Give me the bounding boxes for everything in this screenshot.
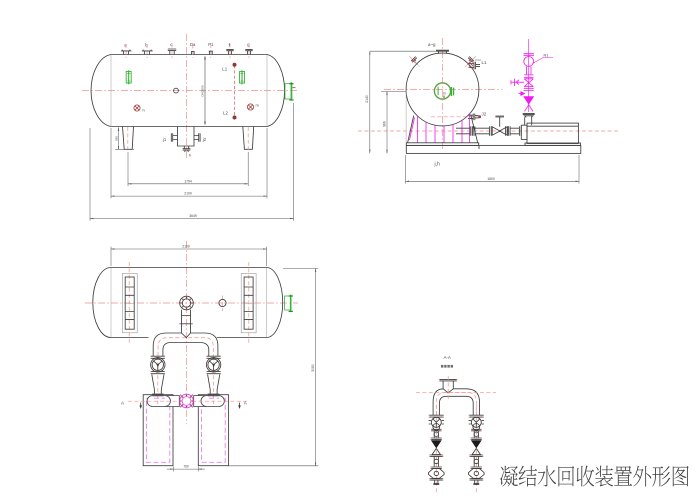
svg-text:A: A (121, 400, 125, 405)
svg-text:A-A: A-A (444, 355, 451, 360)
svg-text:2140: 2140 (365, 95, 369, 103)
svg-text:j,h: j,h (434, 162, 441, 168)
svg-text:1800: 1800 (487, 177, 495, 181)
svg-text:h: h (189, 153, 191, 158)
svg-text:L2: L2 (223, 111, 228, 116)
svg-text:a~g: a~g (428, 42, 436, 47)
svg-text:j1: j1 (162, 137, 167, 142)
svg-text:j2: j2 (202, 137, 207, 142)
svg-text:3080: 3080 (311, 364, 315, 372)
svg-text:h: h (143, 108, 145, 113)
svg-text:L1: L1 (222, 66, 227, 71)
svg-text:m: m (256, 103, 260, 108)
svg-text:N1: N1 (544, 54, 549, 58)
svg-text:m: m (443, 92, 446, 96)
svg-text:966: 966 (382, 121, 386, 127)
svg-text:1794: 1794 (184, 179, 192, 183)
svg-text:A: A (244, 400, 248, 405)
svg-text:DN2000: DN2000 (200, 85, 204, 96)
svg-text:J2: J2 (482, 111, 487, 116)
svg-text:2100: 2100 (184, 192, 192, 196)
svg-text:760: 760 (183, 465, 189, 469)
svg-text:690: 690 (114, 136, 118, 141)
svg-text:2100: 2100 (182, 245, 190, 249)
svg-text:3649: 3649 (189, 214, 197, 218)
svg-text:L1: L1 (482, 60, 487, 65)
